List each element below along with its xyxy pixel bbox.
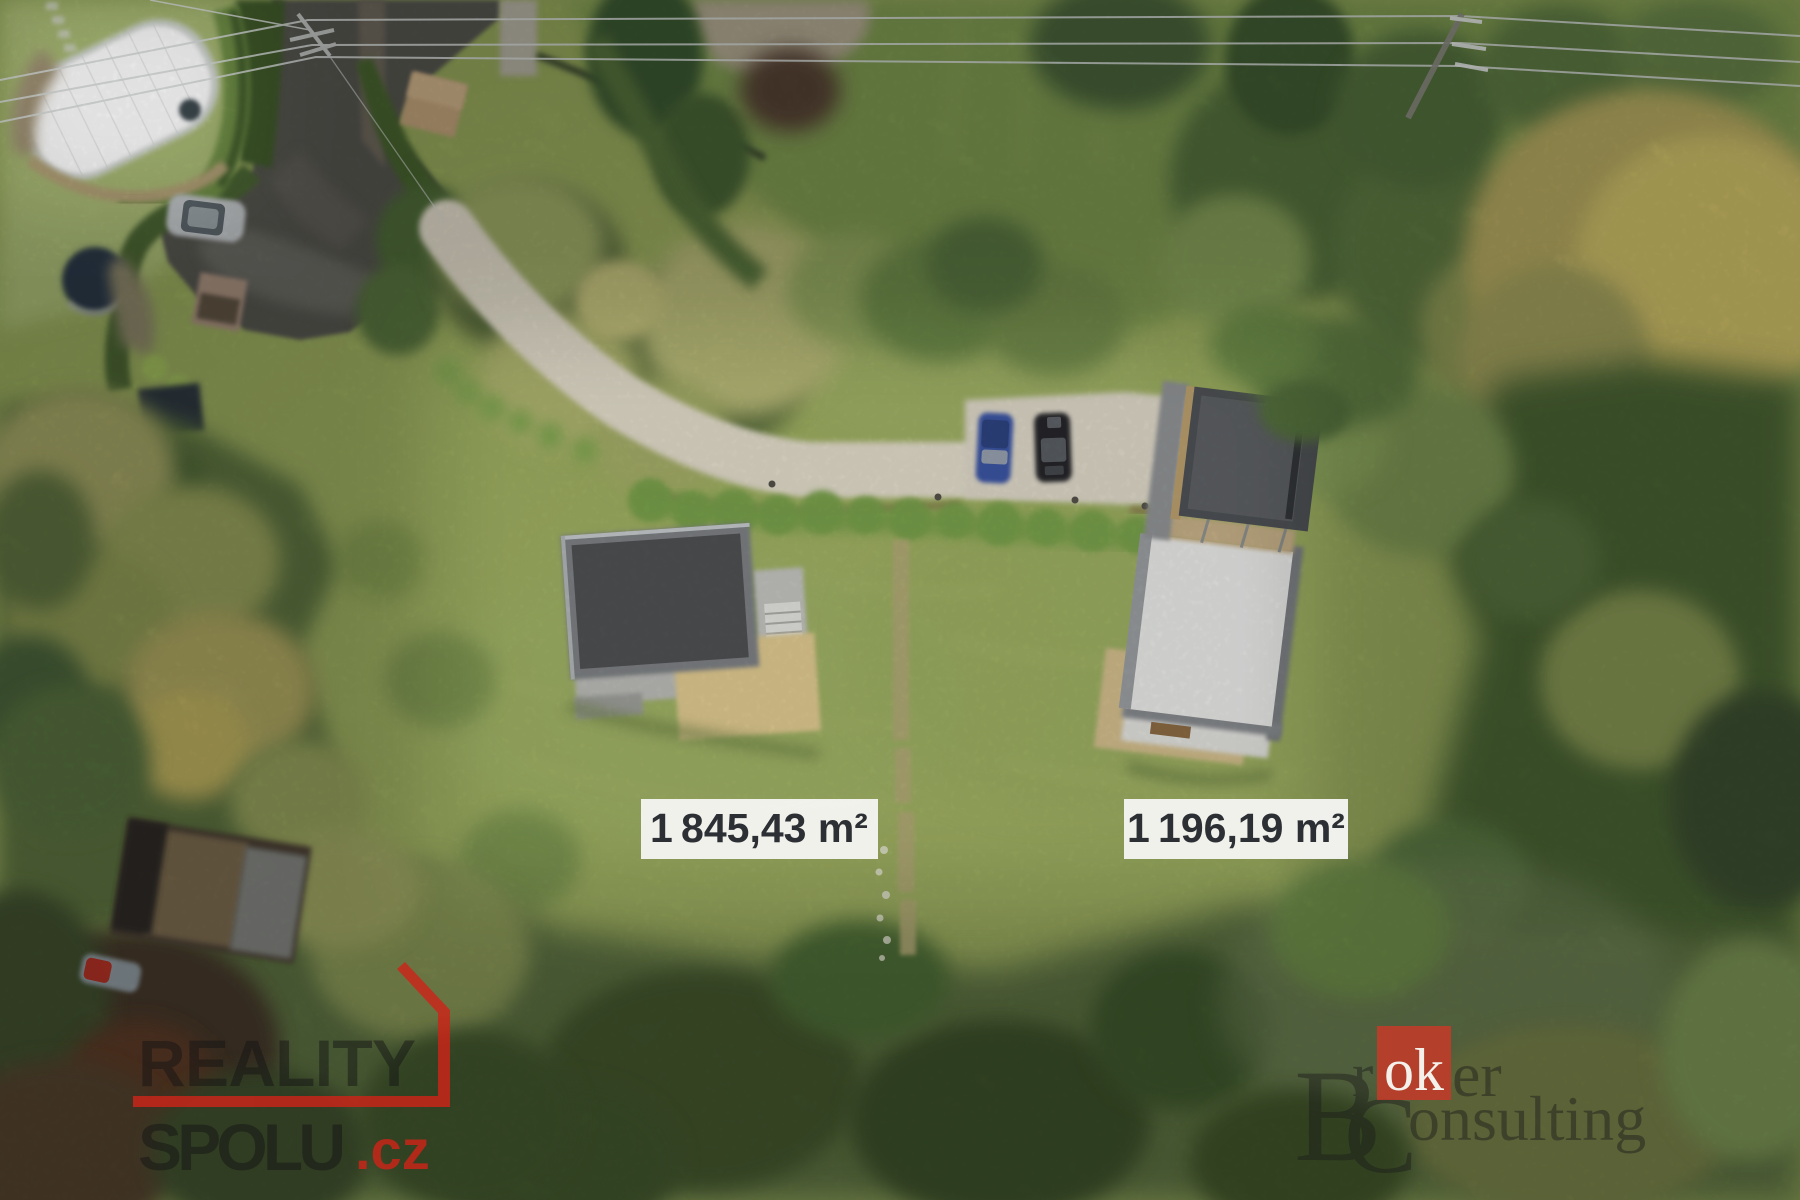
svg-text:SPOLU: SPOLU [138,1110,346,1184]
svg-text:ok: ok [1384,1037,1444,1103]
svg-text:1 196,19 m²: 1 196,19 m² [1127,805,1345,851]
svg-text:.cz: .cz [355,1118,430,1181]
svg-text:1 845,43 m²: 1 845,43 m² [650,805,868,851]
svg-text:REALITY: REALITY [138,1026,416,1100]
